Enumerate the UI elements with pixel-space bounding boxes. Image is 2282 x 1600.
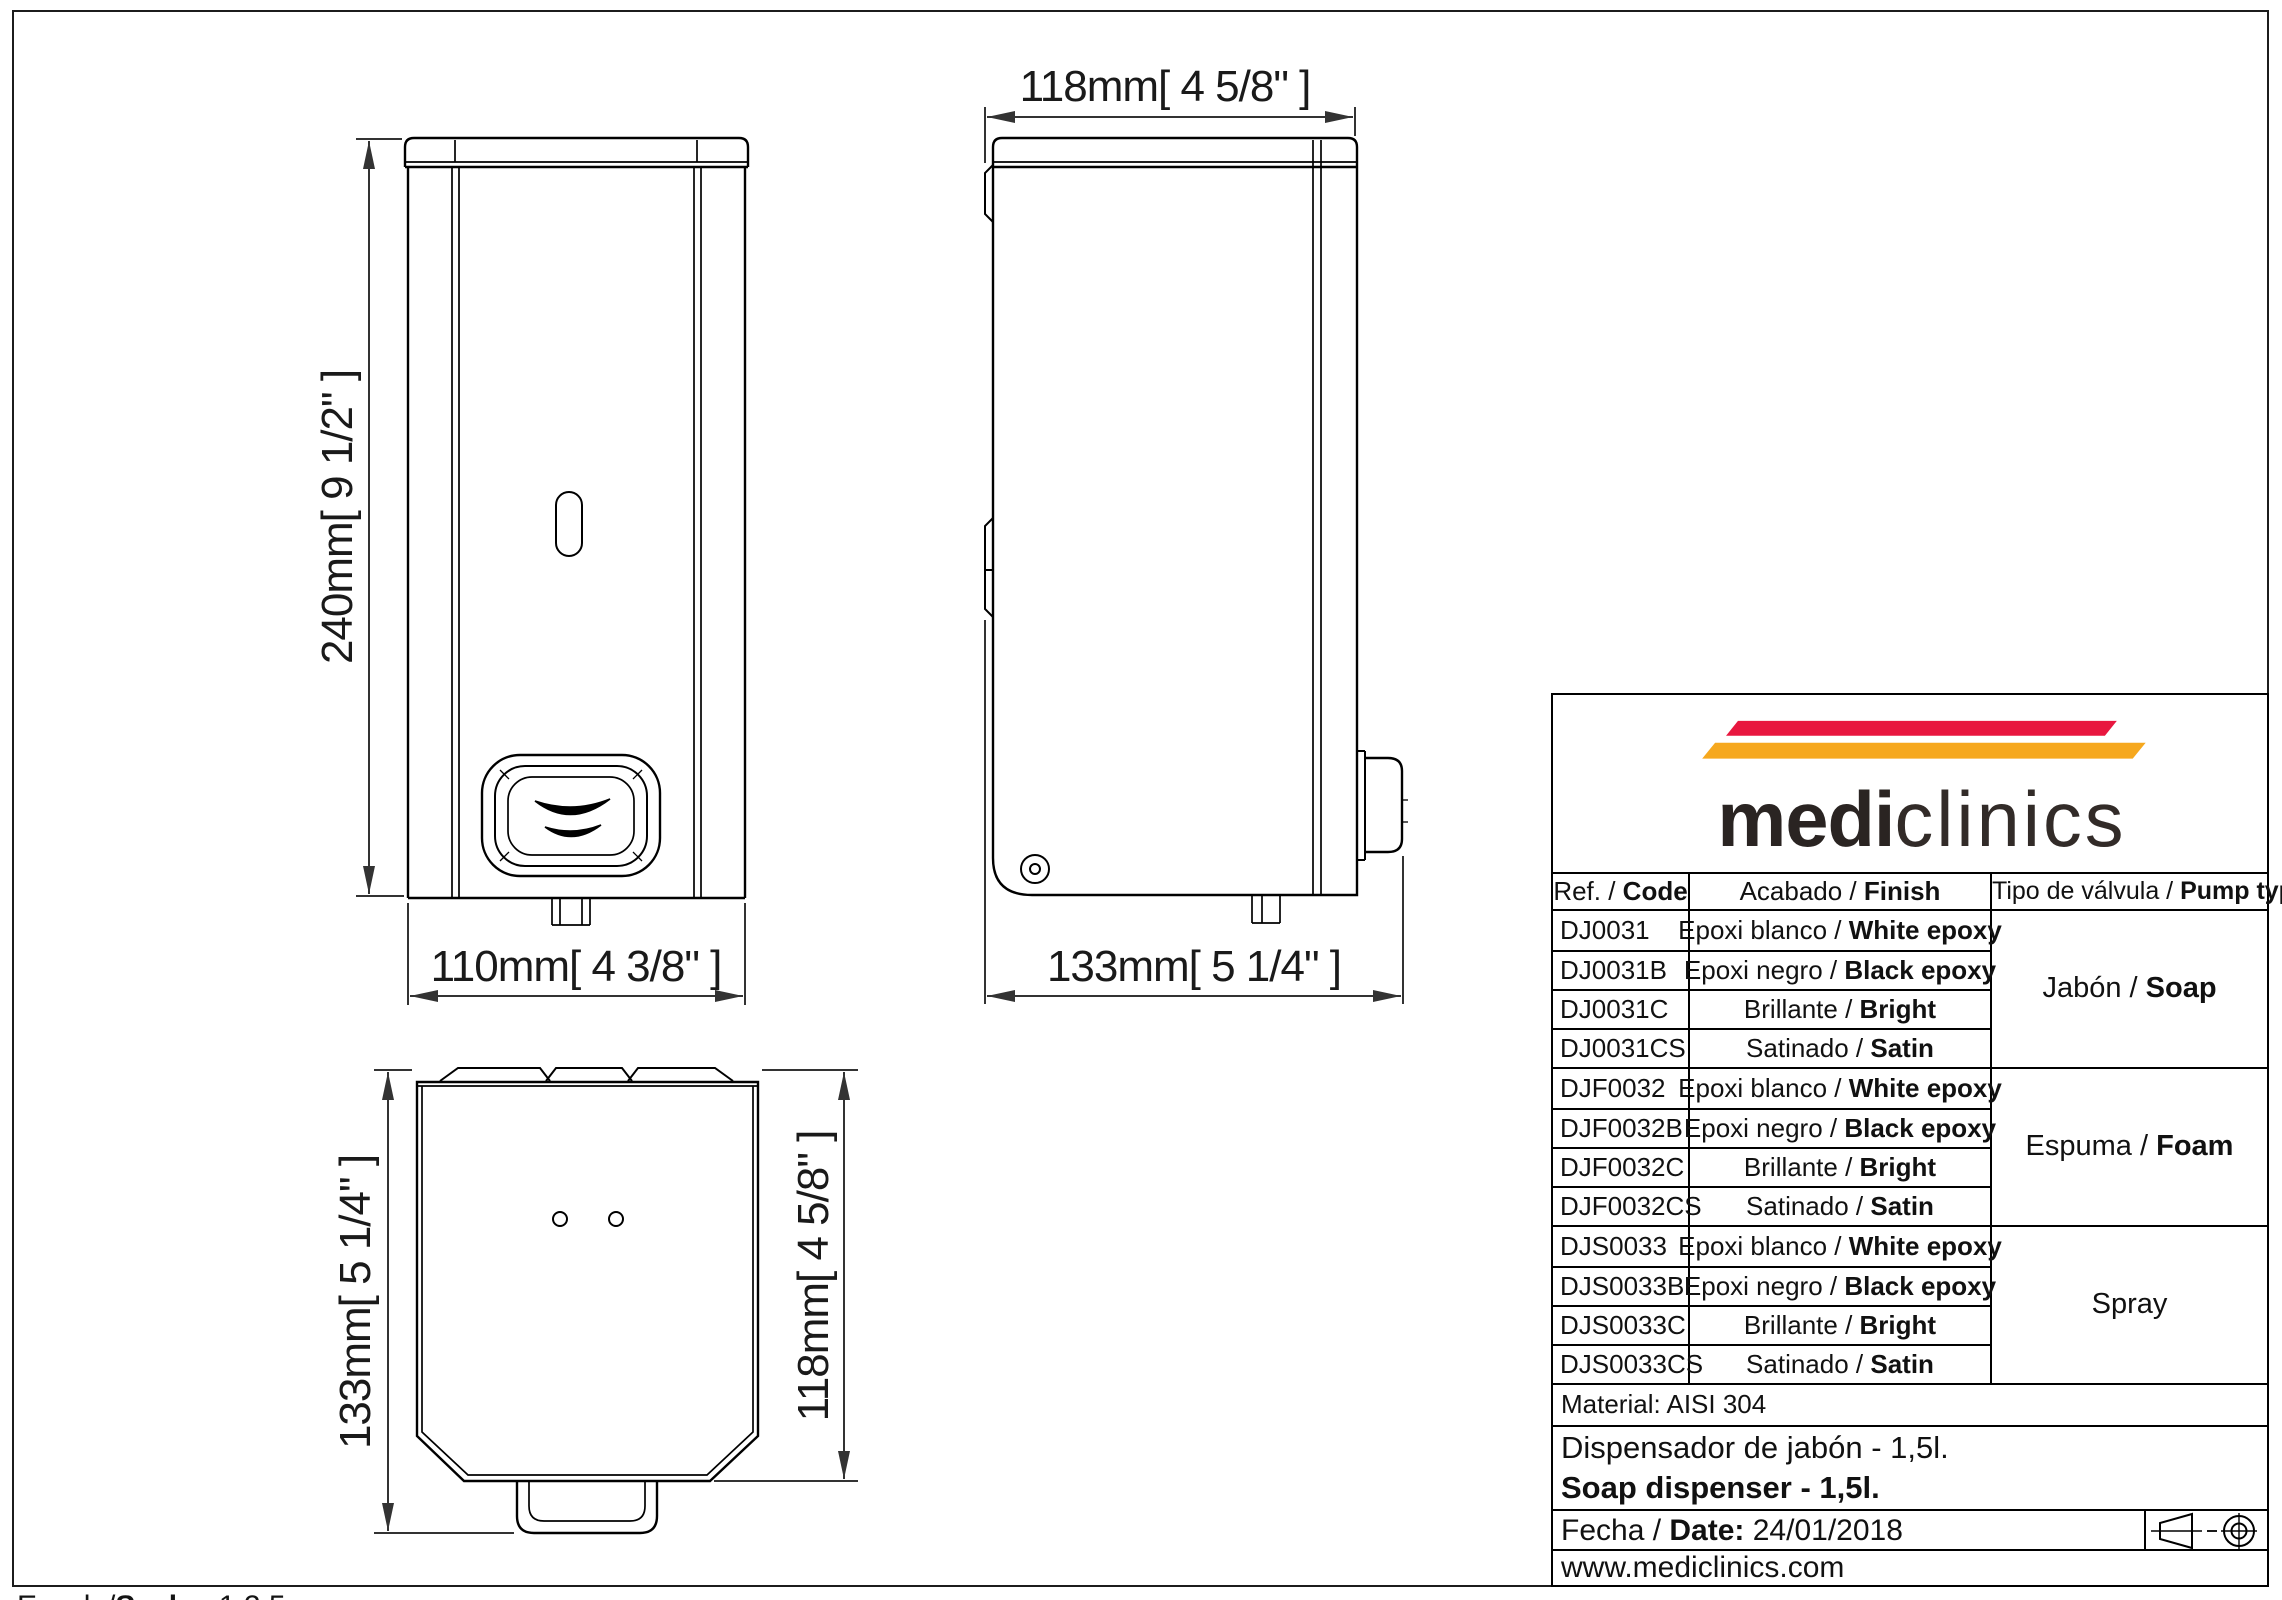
spout-front — [552, 898, 590, 925]
finish-en: Black epoxy — [1844, 1271, 1996, 1302]
finish-en: Bright — [1860, 1152, 1937, 1183]
finish-en: White epoxy — [1849, 1231, 2002, 1262]
product-title-es: Dispensador de jabón - 1,5l. — [1561, 1428, 2267, 1468]
table-row-finish: Epoxi blanco / White epoxy — [1690, 911, 1992, 950]
finish-es: Epoxi blanco / — [1678, 915, 1849, 946]
table-row-finish: Brillante / Bright — [1690, 1147, 1992, 1186]
table-row-finish: Epoxi negro / Black epoxy — [1690, 950, 1992, 989]
dim-front-width: 110mm[ 4 3/8" ] — [431, 942, 722, 991]
product-title-en: Soap dispenser - 1,5l. — [1561, 1468, 2267, 1508]
finish-en: White epoxy — [1849, 1073, 2002, 1104]
dim-top-total-depth: 133mm[ 5 1/4" ] — [331, 1155, 380, 1449]
header-finish: Acabado / Finish — [1690, 874, 1992, 909]
logo-stripe-yellow-icon — [1702, 743, 2145, 759]
push-button-side — [1357, 751, 1408, 860]
website-url: www.mediclinics.com — [1561, 1551, 1844, 1585]
sight-window — [556, 492, 582, 556]
title-block: mediclinics Ref. / Code Acabado / Finish… — [1551, 693, 2269, 1587]
lid-seams — [440, 1068, 733, 1081]
finish-es: Satinado / — [1746, 1033, 1870, 1064]
pump-type-soap: Jabón / Soap — [1992, 911, 2267, 1067]
table-row-code: DJ0031CS — [1553, 1028, 1690, 1067]
scale-value: : 1:2.5 — [194, 1590, 286, 1600]
material-row: Material: AISI 304 — [1553, 1383, 2267, 1425]
spec-group-foam: DJF0032 Epoxi blanco / White epoxy DJF00… — [1553, 1067, 2267, 1225]
finish-es: Epoxi blanco / — [1678, 1231, 1849, 1262]
date-text: Fecha / Date: 24/01/2018 — [1553, 1511, 2146, 1551]
table-row-finish: Epoxi blanco / White epoxy — [1690, 1069, 1992, 1108]
pump-type-spray: Spray — [1992, 1227, 2267, 1383]
finish-es: Epoxi negro / — [1684, 1113, 1844, 1144]
drawing-notes: Escala/Scale: 1:2.5 Dimensiones/Dimensio… — [17, 1504, 445, 1600]
brand-wordmark: mediclinics — [1717, 777, 2126, 863]
finish-en: Satin — [1870, 1033, 1934, 1064]
table-row-code: DJF0032 — [1553, 1069, 1690, 1108]
dim-top-body-depth: 118mm[ 4 5/8" ] — [789, 1131, 838, 1422]
dim-side-depth: 118mm[ 4 5/8" ] — [1020, 62, 1311, 111]
table-row-code: DJ0031C — [1553, 989, 1690, 1028]
finish-es: Brillante / — [1744, 1310, 1860, 1341]
date-label-en: Date: — [1669, 1514, 1744, 1548]
logo-stripe-red-icon — [1726, 721, 2117, 736]
top-view: 133mm[ 5 1/4" ] 118mm[ 4 5/8" ] — [331, 1068, 858, 1533]
table-row-finish: Epoxi blanco / White epoxy — [1690, 1227, 1992, 1266]
drawing-sheet: 240mm[ 9 1/2" ] 110mm[ 4 3/8" ] — [0, 0, 2282, 1600]
finish-en: Satin — [1870, 1191, 1934, 1222]
brand-logo: mediclinics — [1553, 695, 2267, 872]
brand-wordmark-bold: medi — [1717, 777, 1894, 863]
spout-side — [1252, 895, 1280, 923]
push-button-top — [517, 1481, 657, 1533]
pump-en: Soap — [2146, 972, 2217, 1005]
finish-es: Brillante / — [1744, 1152, 1860, 1183]
pump-es: Espuma / — [2026, 1130, 2157, 1163]
header-code: Ref. / Code — [1553, 874, 1690, 909]
table-row-code: DJF0032B — [1553, 1108, 1690, 1147]
pump-type-foam: Espuma / Foam — [1992, 1069, 2267, 1225]
push-button-front — [482, 755, 660, 876]
website-row: www.mediclinics.com — [1553, 1549, 2267, 1585]
finish-es: Epoxi negro / — [1684, 1271, 1844, 1302]
spec-table-header: Ref. / Code Acabado / Finish Tipo de vál… — [1553, 872, 2267, 909]
material-value: Material: AISI 304 — [1561, 1389, 1766, 1420]
header-pump-type: Tipo de válvula / Pump type — [1992, 874, 2282, 909]
pump-en: Foam — [2156, 1130, 2233, 1163]
scale-note: Escala/Scale: 1:2.5 — [17, 1586, 445, 1600]
brand-wordmark-light: clinics — [1894, 777, 2126, 863]
table-row-finish: Brillante / Bright — [1690, 1305, 1992, 1344]
finish-en: Black epoxy — [1844, 955, 1996, 986]
finish-en: Black epoxy — [1844, 1113, 1996, 1144]
finish-en: Satin — [1870, 1349, 1934, 1380]
dim-side-total-depth: 133mm[ 5 1/4" ] — [1047, 942, 1341, 991]
header-code-en: Code — [1623, 876, 1688, 907]
table-row-code: DJ0031 — [1553, 911, 1690, 950]
spec-group-spray: DJS0033 Epoxi blanco / White epoxy DJS00… — [1553, 1225, 2267, 1383]
table-row-code: DJS0033C — [1553, 1305, 1690, 1344]
side-view: 118mm[ 4 5/8" ] 133mm[ 5 1/4" ] — [985, 62, 1408, 1004]
date-value: 24/01/2018 — [1744, 1514, 1902, 1548]
scale-label-en: Scale — [115, 1590, 193, 1600]
table-row-finish: Brillante / Bright — [1690, 989, 1992, 1028]
mount-hole-right — [609, 1212, 623, 1226]
finish-es: Epoxi blanco / — [1678, 1073, 1849, 1104]
description-row: Dispensador de jabón - 1,5l. Soap dispen… — [1553, 1425, 2267, 1509]
finish-en: White epoxy — [1849, 915, 2002, 946]
table-row-finish: Satinado / Satin — [1690, 1344, 1992, 1383]
table-row-code: DJS0033 — [1553, 1227, 1690, 1266]
header-finish-es: Acabado / — [1740, 876, 1864, 907]
table-row-code: DJF0032CS — [1553, 1186, 1690, 1225]
date-label-es: Fecha / — [1561, 1514, 1669, 1548]
scale-label-es: Escala/ — [17, 1590, 115, 1600]
header-pump-en: Pump type — [2180, 877, 2282, 906]
table-row-code: DJF0032C — [1553, 1147, 1690, 1186]
spec-group-soap: DJ0031 Epoxi blanco / White epoxy DJ0031… — [1553, 909, 2267, 1067]
dim-front-height: 240mm[ 9 1/2" ] — [313, 370, 362, 664]
first-angle-projection-icon — [2146, 1511, 2267, 1551]
header-code-es: Ref. / — [1553, 876, 1622, 907]
finish-es: Brillante / — [1744, 994, 1860, 1025]
finish-es: Epoxi negro / — [1684, 955, 1844, 986]
finish-es: Satinado / — [1746, 1191, 1870, 1222]
screw-detail — [1021, 855, 1049, 883]
finish-en: Bright — [1860, 994, 1937, 1025]
header-pump-es: Tipo de válvula / — [1992, 877, 2180, 906]
date-row: Fecha / Date: 24/01/2018 — [1553, 1509, 2267, 1549]
table-row-finish: Satinado / Satin — [1690, 1028, 1992, 1067]
finish-es: Satinado / — [1746, 1349, 1870, 1380]
pump-es: Spray — [2092, 1288, 2168, 1321]
header-finish-en: Finish — [1864, 876, 1941, 907]
table-row-code: DJS0033CS — [1553, 1344, 1690, 1383]
table-row-finish: Epoxi negro / Black epoxy — [1690, 1108, 1992, 1147]
table-row-finish: Epoxi negro / Black epoxy — [1690, 1266, 1992, 1305]
table-row-finish: Satinado / Satin — [1690, 1186, 1992, 1225]
finish-en: Bright — [1860, 1310, 1937, 1341]
table-row-code: DJS0033B — [1553, 1266, 1690, 1305]
mount-hole-left — [553, 1212, 567, 1226]
pump-es: Jabón / — [2042, 972, 2145, 1005]
front-view: 240mm[ 9 1/2" ] 110mm[ 4 3/8" ] — [313, 138, 748, 1005]
table-row-code: DJ0031B — [1553, 950, 1690, 989]
